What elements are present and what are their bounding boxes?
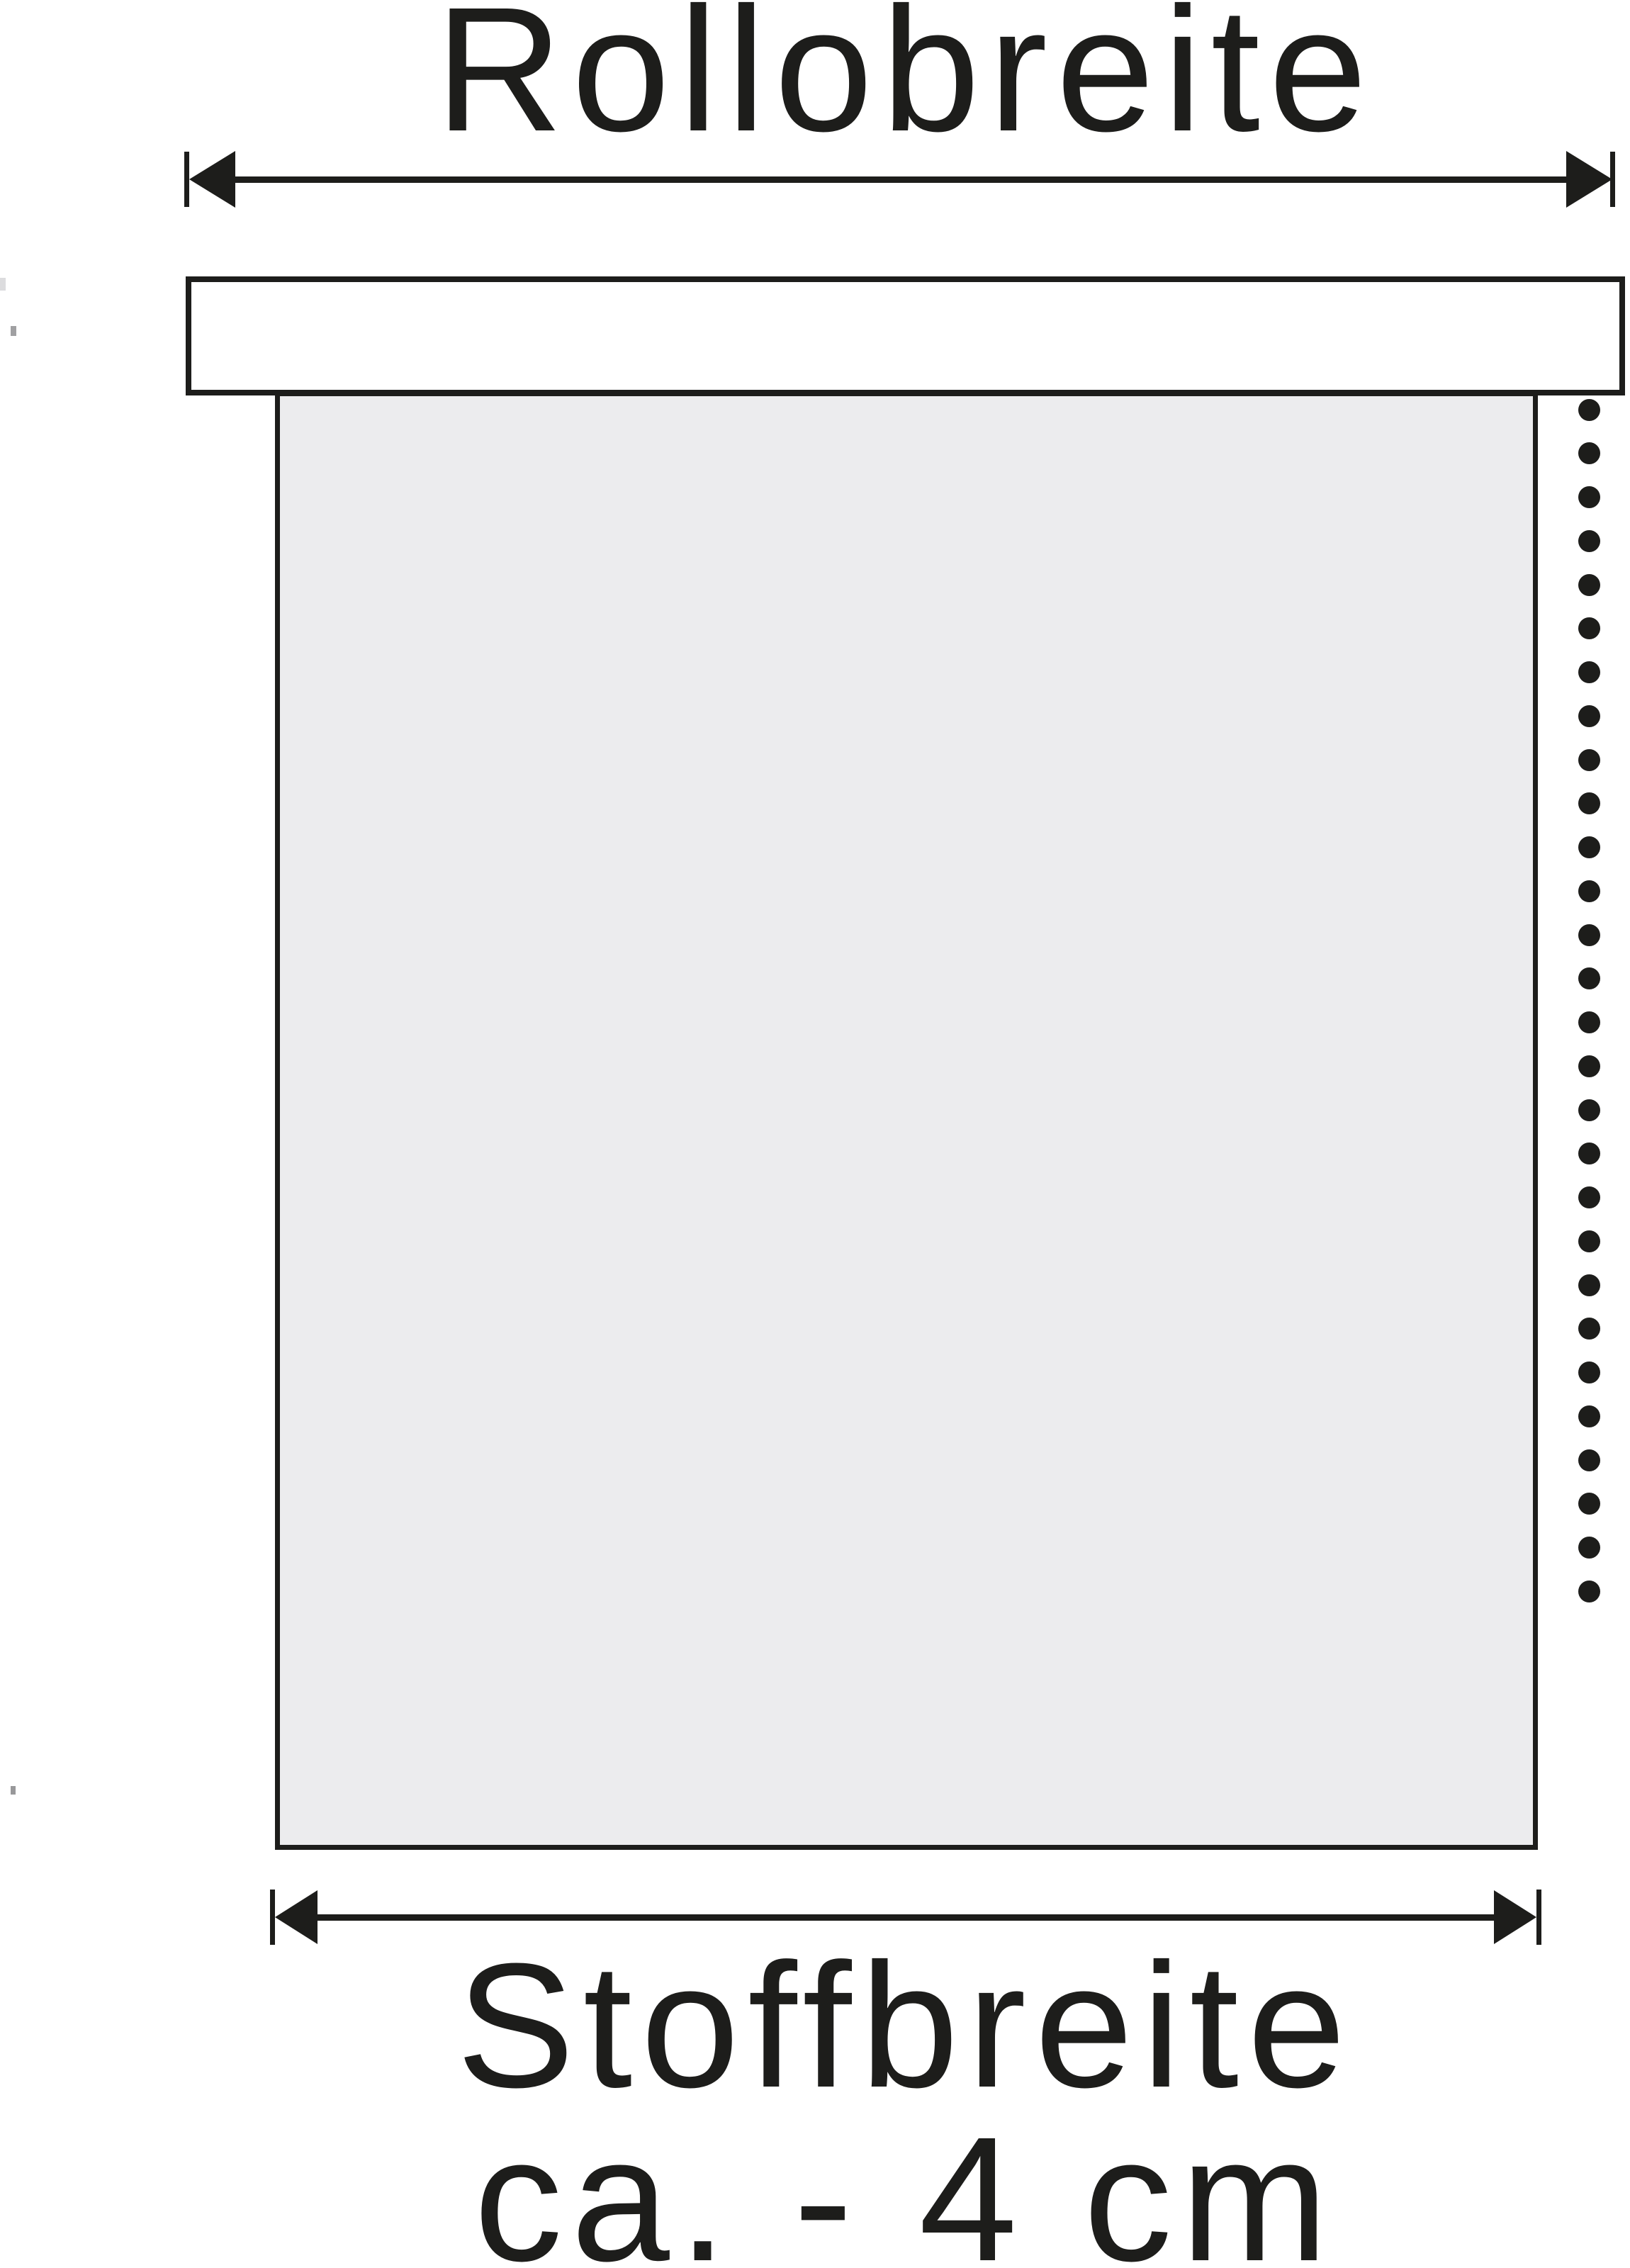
arrowhead-right-icon xyxy=(1494,1890,1536,1944)
bead-chain-dot xyxy=(1578,1143,1600,1164)
bead-chain-dot xyxy=(1578,1449,1600,1471)
bead-chain-dot xyxy=(1578,486,1600,508)
stoffbreite-offset-label: ca. - 4 cm xyxy=(186,2111,1625,2268)
bead-chain-dot xyxy=(1578,1011,1600,1033)
bead-chain-dot xyxy=(1578,1405,1600,1427)
scan-artifact xyxy=(11,1786,16,1795)
bead-chain-dot xyxy=(1578,1537,1600,1559)
bead-chain-dot xyxy=(1578,1230,1600,1252)
bead-chain-dot xyxy=(1578,880,1600,902)
scan-artifact xyxy=(0,278,6,291)
bead-chain-dot xyxy=(1578,1318,1600,1340)
bead-chain-dot xyxy=(1578,1099,1600,1121)
bead-chain-dot xyxy=(1578,399,1600,421)
bead-chain-dot xyxy=(1578,749,1600,771)
bead-chain-dot xyxy=(1578,1274,1600,1296)
dimension-line xyxy=(316,1914,1494,1921)
scan-artifact xyxy=(11,326,16,336)
bead-chain-dot xyxy=(1578,705,1600,727)
bead-chain-dot xyxy=(1578,792,1600,814)
rollobreite-label: Rollobreite xyxy=(186,0,1625,158)
roller-cassette xyxy=(186,276,1625,395)
bead-chain-dot xyxy=(1578,530,1600,552)
bead-chain-dot xyxy=(1578,1362,1600,1383)
arrowhead-right-icon xyxy=(1566,151,1612,208)
bead-chain-dot xyxy=(1578,924,1600,946)
rollo-diagram: Rollobreite Stoffbreite ca. - 4 cm xyxy=(0,0,1630,2268)
bead-chain-dot xyxy=(1578,617,1600,639)
bead-chain-dot xyxy=(1578,836,1600,858)
stoffbreite-label: Stoffbreite xyxy=(186,1937,1625,2114)
dimension-line xyxy=(234,176,1568,183)
bead-chain-dot xyxy=(1578,1186,1600,1208)
bead-chain-dot xyxy=(1578,574,1600,596)
bead-chain-dot xyxy=(1578,967,1600,989)
bead-chain-dot xyxy=(1578,661,1600,683)
fabric-panel xyxy=(275,391,1538,1850)
bead-chain-dot xyxy=(1578,1493,1600,1515)
bead-chain-dot xyxy=(1578,1581,1600,1602)
arrowhead-left-icon xyxy=(189,151,235,208)
dimension-tick-left xyxy=(184,152,189,207)
arrowhead-left-icon xyxy=(275,1890,317,1944)
bead-chain-dot xyxy=(1578,442,1600,464)
bead-chain-dot xyxy=(1578,1055,1600,1077)
